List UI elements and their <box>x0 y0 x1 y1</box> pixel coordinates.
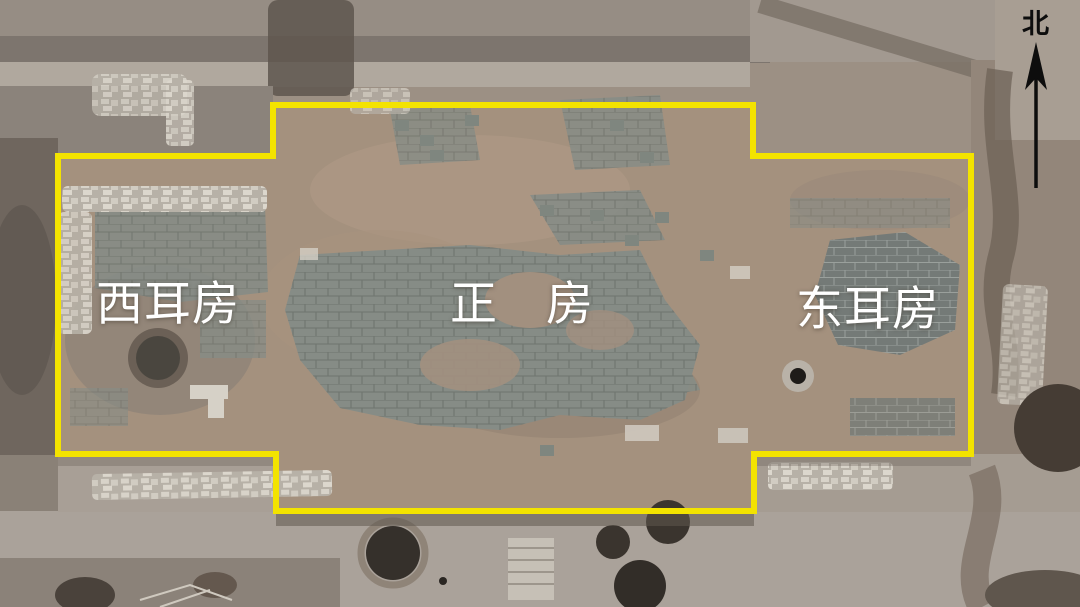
pit <box>366 526 420 580</box>
pit <box>136 336 180 380</box>
well <box>790 368 806 384</box>
north-label: 北 <box>1022 11 1049 38</box>
west-room-label: 西耳房 <box>96 280 240 327</box>
main-room-label: 正 房 <box>450 280 594 327</box>
excavation-aerial-view: 西耳房 正 房 东耳房 北 <box>0 0 1080 607</box>
east-room-label: 东耳房 <box>796 285 940 332</box>
north-arrow-icon <box>1019 38 1053 193</box>
pit <box>596 525 630 559</box>
